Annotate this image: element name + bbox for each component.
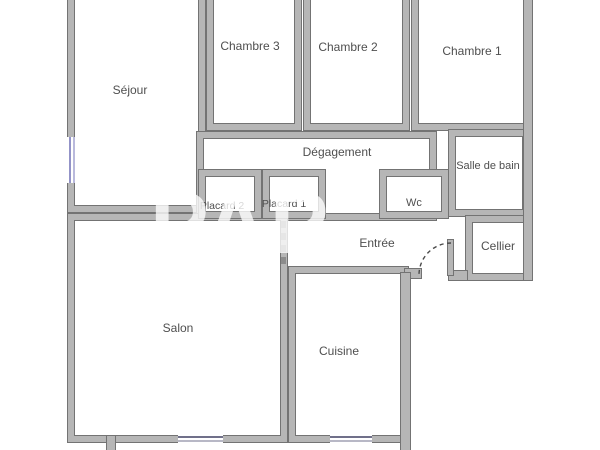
label-sejour: Séjour bbox=[113, 83, 148, 97]
label-chambre-1: Chambre 1 bbox=[442, 44, 501, 58]
label-salon: Salon bbox=[163, 321, 194, 335]
label-placard-1: Placard 1 bbox=[262, 198, 306, 210]
label-placard-2: Placard 2 bbox=[200, 200, 244, 212]
window-cuisine-line bbox=[330, 436, 372, 438]
window-cuisine-line-2 bbox=[330, 440, 372, 442]
room-placard-1 bbox=[263, 170, 325, 218]
wall-cuisine-right bbox=[401, 273, 410, 450]
label-degagement: Dégagement bbox=[303, 145, 372, 159]
room-chambre-2 bbox=[304, 0, 409, 130]
label-cellier: Cellier bbox=[481, 239, 515, 253]
room-chambre-3 bbox=[207, 0, 301, 130]
window-sejour bbox=[66, 137, 77, 183]
room-salle-de-bain bbox=[449, 130, 529, 216]
label-salle-de-bain: Salle de bain bbox=[456, 160, 520, 172]
wall-bottom-left-step bbox=[107, 436, 115, 450]
window-sejour-line bbox=[69, 137, 71, 183]
window-salon-line bbox=[178, 436, 223, 438]
window-sejour-line-2 bbox=[73, 137, 75, 183]
label-chambre-2: Chambre 2 bbox=[318, 40, 377, 54]
window-salon bbox=[178, 433, 223, 444]
floor-plan: Séjour Chambre 3 Chambre 2 Chambre 1 Dég… bbox=[0, 0, 600, 450]
window-salon-line-2 bbox=[178, 440, 223, 442]
label-wc: Wc bbox=[406, 197, 422, 209]
room-wc bbox=[380, 170, 448, 218]
entrance-door-leaf bbox=[448, 240, 453, 275]
label-entree: Entrée bbox=[359, 236, 394, 250]
open-passage-dashed-line bbox=[281, 221, 286, 268]
room-sejour bbox=[68, 0, 205, 212]
label-cuisine: Cuisine bbox=[319, 344, 359, 358]
window-cuisine bbox=[330, 433, 372, 444]
wall-right-exterior bbox=[524, 0, 532, 280]
label-chambre-3: Chambre 3 bbox=[220, 39, 279, 53]
room-chambre-1 bbox=[412, 0, 532, 130]
